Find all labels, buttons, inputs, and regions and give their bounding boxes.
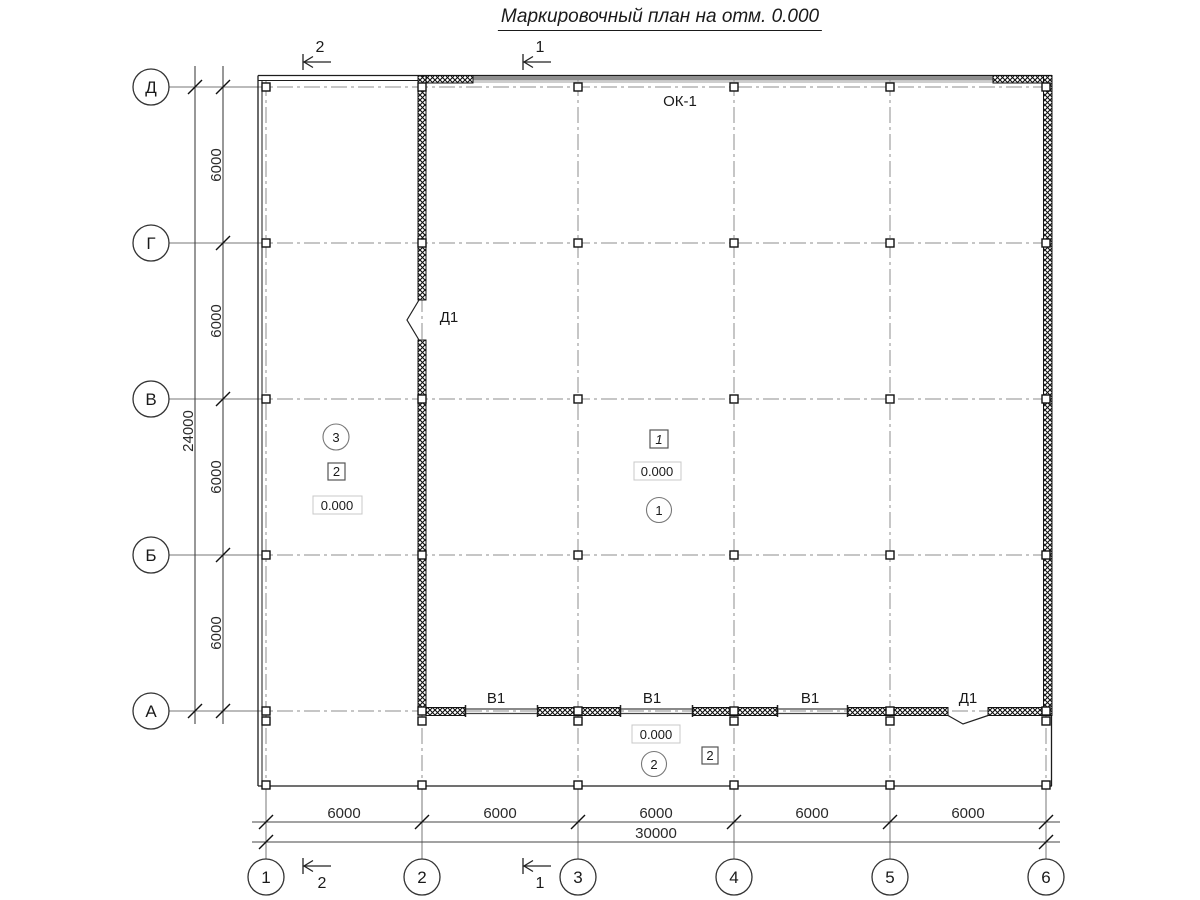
door-symbols [407,300,988,724]
section-label: 2 [316,39,325,56]
wall-segment [426,708,465,716]
wall-segment [422,76,473,84]
door-d1-interior-label: Д1 [440,309,459,326]
column-marker [886,83,894,91]
column-marker [730,781,738,789]
row-axis-bubbles: Д Г В Б А [133,69,169,729]
section-mark-top-1: 1 [523,39,551,70]
column-marker [418,551,426,559]
window-b1-label-1: В1 [487,690,505,707]
room-hall-elevation: 0.000 [641,464,674,479]
dim-bottom-bay-3: 6000 [639,805,672,822]
col-axis-bubbles: 1 2 3 4 5 6 [248,859,1064,895]
dim-bottom-bay-1: 6000 [327,805,360,822]
column-marker [418,239,426,247]
dim-bottom-bay-5: 6000 [951,805,984,822]
axis-label-a: А [145,702,157,721]
axis-label-5: 5 [885,868,894,887]
column-marker [886,395,894,403]
dim-left-bay-4: 6000 [208,616,225,649]
section-label: 1 [536,875,545,892]
column-marker [574,83,582,91]
column-marker [730,395,738,403]
dim-bottom-total: 30000 [635,825,677,842]
door-d1-bottom-symbol [948,716,988,725]
opening-labels: ОК-1 Д1 Д1 В1 В1 В1 [440,93,978,707]
plan-canvas: Д Г В Б А 1 2 3 4 5 6 6000 [0,0,1200,900]
column-marker [418,395,426,403]
column-marker [418,83,426,91]
window-bands [465,76,993,717]
column-marker [418,717,426,725]
axis-label-6: 6 [1041,868,1050,887]
room-bottom-mark: 2 [706,748,713,763]
axis-label-2: 2 [417,868,426,887]
column-marker [730,707,738,715]
column-marker [418,707,426,715]
axis-label-v: В [145,390,156,409]
dimension-lines [188,66,1060,849]
column-marker [730,239,738,247]
column-marker [886,239,894,247]
room-bottom-elevation: 0.000 [640,727,673,742]
room-left-elevation: 0.000 [321,498,354,513]
wall-segment [988,708,1043,716]
axis-label-b: Б [145,546,156,565]
column-marker [262,707,270,715]
column-marker [730,83,738,91]
column-marker [574,395,582,403]
column-marker [262,83,270,91]
column-marker [262,239,270,247]
column-marker [574,717,582,725]
column-marker [886,551,894,559]
column-marker [574,781,582,789]
wall-segment [418,76,426,300]
window-b1-label-3: В1 [801,690,819,707]
section-label: 2 [318,875,327,892]
room-bottom-number: 2 [650,757,657,772]
column-marker [886,707,894,715]
column-marker [574,707,582,715]
wall-segment [848,708,948,716]
room-hall-mark: 1 [655,432,662,447]
axis-label-1: 1 [261,868,270,887]
column-marker [730,551,738,559]
section-mark-bottom-2: 2 [303,858,331,892]
dim-left-bay-1: 6000 [208,148,225,181]
axis-label-4: 4 [729,868,738,887]
column-marker [262,395,270,403]
column-marker [886,717,894,725]
column-marker [1042,781,1050,789]
room-hall-labels: 1 0.000 1 [634,430,681,523]
column-marker [1042,83,1050,91]
column-marker [262,781,270,789]
column-marker [262,717,270,725]
dim-left-total: 24000 [180,410,197,452]
window-ok1-band [473,76,993,81]
axis-label-d: Д [145,78,157,97]
section-mark-bottom-1: 1 [523,858,551,892]
dim-left-bay-3: 6000 [208,460,225,493]
column-marker [1042,551,1050,559]
section-mark-top-2: 2 [303,39,331,70]
drawing-sheet: Маркировочный план на отм. 0.000 [0,0,1200,900]
dim-bottom-bay-2: 6000 [483,805,516,822]
column-marker [730,717,738,725]
column-marker [574,239,582,247]
room-hall-number: 1 [655,503,662,518]
axis-label-3: 3 [573,868,582,887]
room-left-number: 3 [332,430,339,445]
room-left-mark: 2 [333,464,340,479]
column-marker [1042,395,1050,403]
column-marker [574,551,582,559]
door-d1-bottom-label: Д1 [959,690,978,707]
column-marker [1042,239,1050,247]
column-marker [262,551,270,559]
section-label: 1 [536,39,545,56]
room-bottom-labels: 0.000 2 2 [632,725,718,777]
column-marker [1042,717,1050,725]
window-b1-label-2: В1 [643,690,661,707]
door-d1-interior-symbol [407,300,419,340]
column-marker [1042,707,1050,715]
column-marker [886,781,894,789]
dimension-texts: 6000 6000 6000 6000 24000 6000 6000 6000… [180,148,985,842]
window-ok1-label: ОК-1 [663,93,697,110]
dim-left-bay-2: 6000 [208,304,225,337]
extension-lines [169,87,1046,859]
column-marker [418,781,426,789]
axis-label-g: Г [146,234,155,253]
dim-bottom-bay-4: 6000 [795,805,828,822]
room-left-labels: 3 2 0.000 [313,424,362,514]
